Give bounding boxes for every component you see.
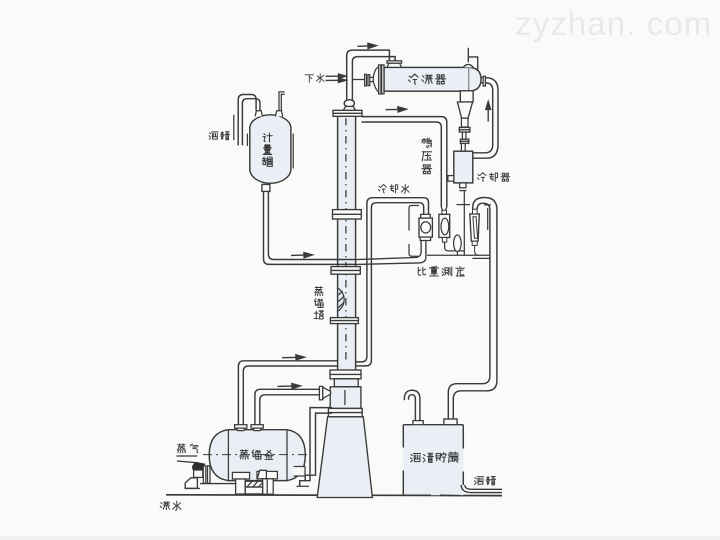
svg-text:zyzhan. com: zyzhan. com — [515, 5, 712, 42]
